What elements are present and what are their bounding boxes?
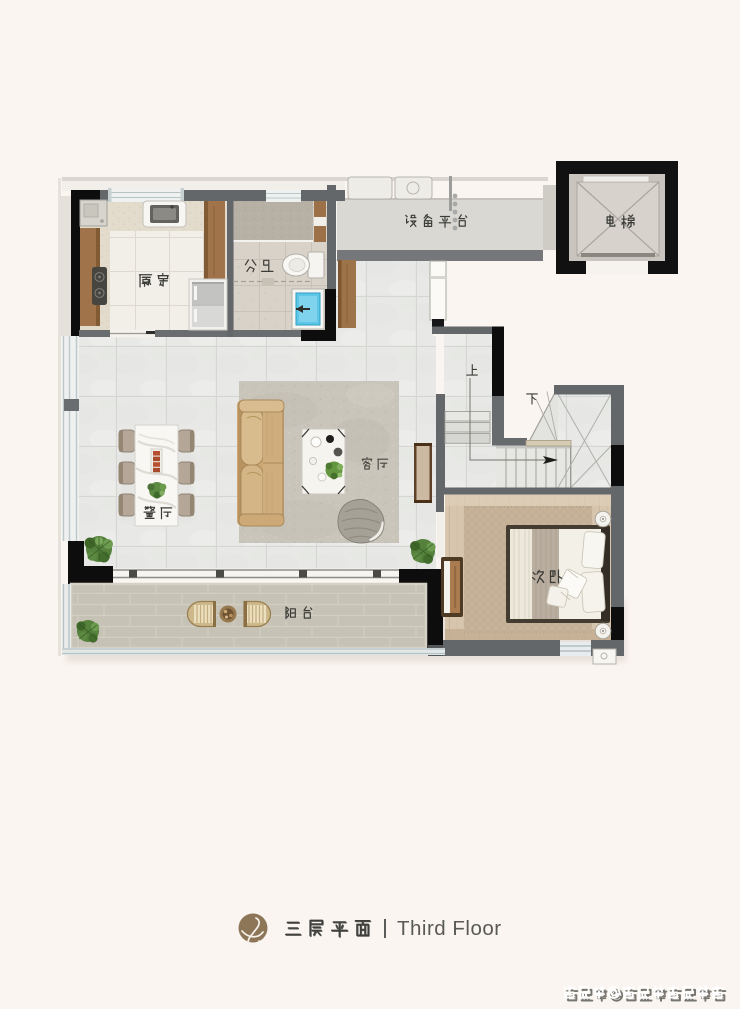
svg-text:Third Floor: Third Floor bbox=[397, 917, 502, 940]
